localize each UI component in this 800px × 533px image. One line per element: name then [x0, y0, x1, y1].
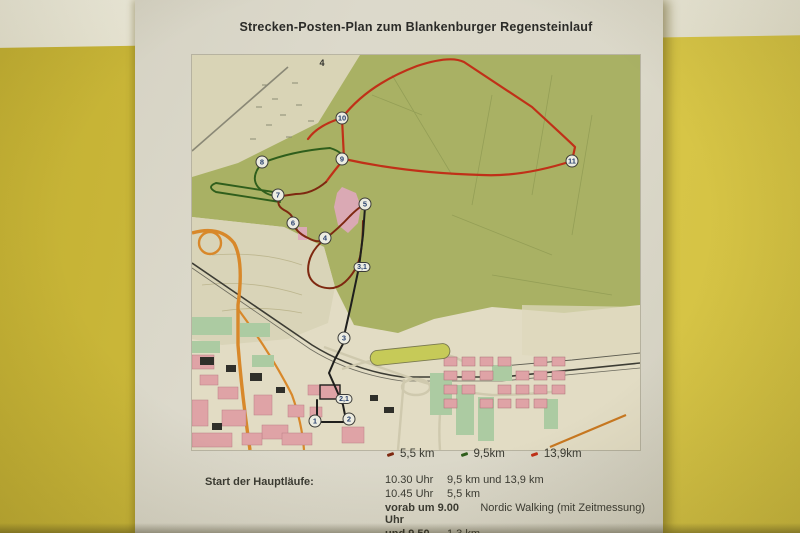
legend-item: 13,9km — [531, 448, 582, 460]
schedule-time: 10.45 Uhr — [385, 488, 447, 500]
checkpoint-marker-4: 4 — [319, 232, 332, 245]
legend-label: 5,5 km — [400, 448, 435, 460]
bottom-shadow — [0, 523, 800, 533]
schedule-row: 10.45 Uhr5,5 km — [385, 488, 645, 500]
legend-color-tick — [387, 451, 395, 456]
checkpoint-marker-8: 8 — [256, 156, 269, 169]
legend-label: 9,5km — [474, 448, 505, 460]
poster-paper: Strecken-Posten-Plan zum Blankenburger R… — [135, 0, 663, 533]
schedule-desc: 5,5 km — [447, 488, 480, 500]
schedule-row: 10.30 Uhr9,5 km und 13,9 km — [385, 474, 645, 486]
schedule-desc: 9,5 km und 13,9 km — [447, 474, 544, 486]
poster-title: Strecken-Posten-Plan zum Blankenburger R… — [192, 20, 640, 34]
checkpoint-marker-9: 9 — [336, 153, 349, 166]
legend-item: 9,5km — [461, 448, 505, 460]
legend-item: 5,5 km — [387, 448, 435, 460]
schedule-heading: Start der Hauptläufe: — [205, 476, 314, 488]
legend-color-tick — [460, 451, 468, 456]
checkpoint-marker-1: 1 — [309, 415, 322, 428]
checkpoint-marker-6: 6 — [287, 217, 300, 230]
trail-number-label: 4 — [319, 58, 324, 68]
checkpoint-marker-7: 7 — [272, 189, 285, 202]
checkpoint-marker-5: 5 — [359, 198, 372, 211]
legend-label: 13,9km — [544, 448, 582, 460]
checkpoint-marker-11: 11 — [566, 155, 579, 168]
map-fields-e — [522, 305, 640, 363]
legend-color-tick — [531, 451, 539, 456]
route-map: 4 12345678910113,12,1 — [192, 55, 640, 450]
schedule-time: 10.30 Uhr — [385, 474, 447, 486]
distance-marker: 3,1 — [354, 262, 371, 272]
legend: 5,5 km9,5km13,9km — [387, 448, 582, 460]
checkpoint-marker-2: 2 — [343, 413, 356, 426]
checkpoint-marker-10: 10 — [336, 112, 349, 125]
checkpoint-marker-3: 3 — [338, 332, 351, 345]
distance-marker: 2,1 — [336, 394, 353, 404]
photo-of-poster-on-wall: Strecken-Posten-Plan zum Blankenburger R… — [0, 0, 800, 533]
map-svg — [192, 55, 640, 450]
